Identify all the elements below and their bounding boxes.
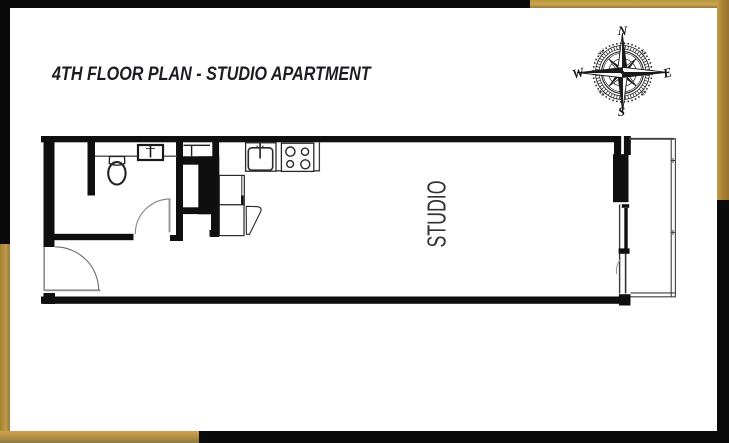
svg-text:S: S <box>618 104 625 119</box>
svg-text:E: E <box>660 64 674 81</box>
svg-text:SE: SE <box>639 88 647 96</box>
svg-text:STUDIO: STUDIO <box>422 181 452 248</box>
svg-text:N: N <box>617 23 628 38</box>
